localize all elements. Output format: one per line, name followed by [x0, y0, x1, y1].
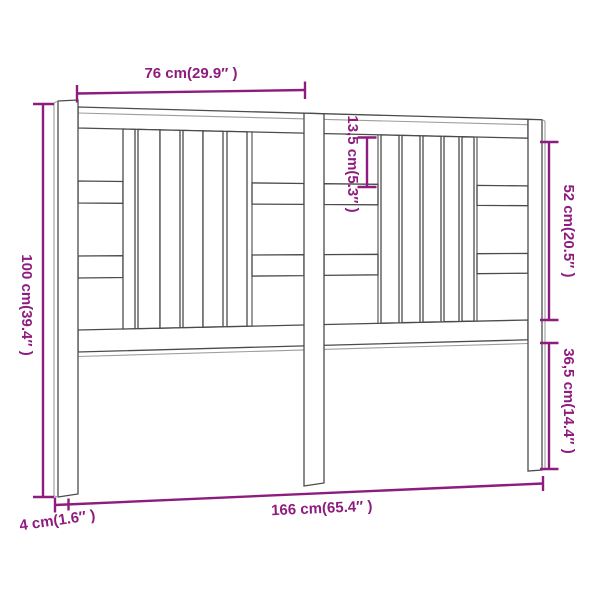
cross-bar — [252, 255, 304, 276]
slat — [381, 135, 399, 323]
dim-total-width-label: 166 cm(65.4″ ) — [271, 498, 373, 519]
slat — [160, 130, 180, 328]
slat — [402, 135, 420, 322]
dim-total-width: 166 cm(65.4″ ) — [55, 476, 543, 519]
slat — [423, 136, 441, 322]
slat — [123, 129, 135, 329]
cross-bar — [78, 181, 123, 203]
slat — [183, 130, 203, 327]
left-post — [54, 100, 78, 497]
vertical-slats — [123, 129, 474, 329]
right-post — [528, 119, 545, 471]
dim-slat-opening-label: 13,5 cm(5.3″ ) — [344, 115, 361, 212]
slat — [444, 136, 459, 321]
dim-top-width-label: 76 cm(29.9″ ) — [144, 65, 237, 82]
slat — [203, 131, 223, 327]
cross-bar — [78, 256, 123, 278]
cross-bar — [252, 183, 304, 205]
cross-bar — [477, 253, 528, 273]
dim-height-label: 100 cm(39.4″ ) — [18, 254, 35, 355]
middle-post — [304, 113, 324, 486]
headboard-drawing: 76 cm(29.9″ ) 100 cm(39.4″ ) 13,5 cm(5.3… — [0, 0, 600, 600]
dim-top-width: 76 cm(29.9″ ) — [77, 65, 305, 103]
dim-depth-label: 4 cm(1.6″ ) — [18, 507, 96, 534]
dim-upper-section-label: 52 cm(20.5″ ) — [560, 184, 577, 277]
dimension-diagram: 76 cm(29.9″ ) 100 cm(39.4″ ) 13,5 cm(5.3… — [0, 0, 600, 600]
slat — [462, 137, 474, 321]
dim-height: 100 cm(39.4″ ) — [18, 104, 54, 497]
cross-bar — [324, 254, 378, 275]
dim-leg-height-label: 36,5 cm(14.4″ ) — [560, 348, 577, 454]
slat — [227, 131, 247, 326]
slat — [138, 129, 160, 328]
cross-bar — [477, 185, 528, 205]
